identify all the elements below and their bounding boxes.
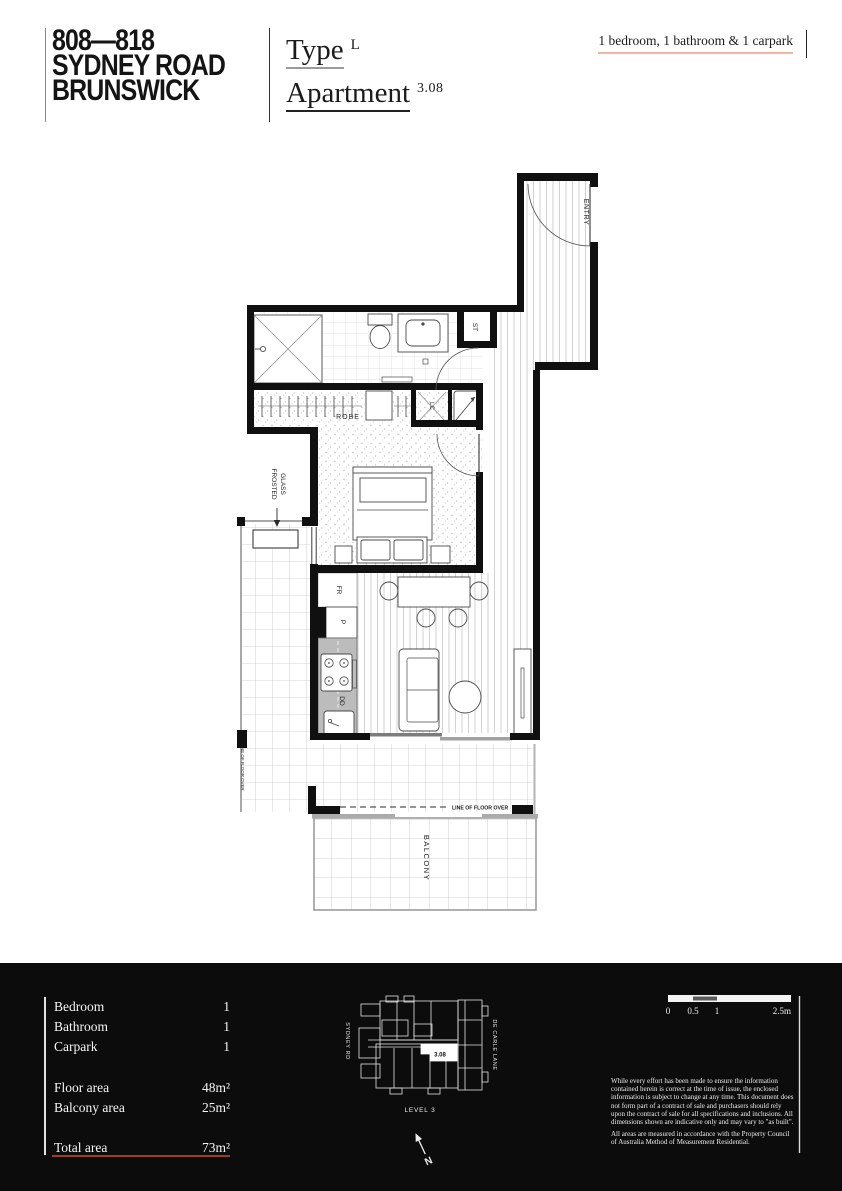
scale-tick-25: 2.5m	[773, 1006, 791, 1016]
disclaimer: While every effort has been made to ensu…	[611, 1077, 795, 1151]
bedroom-window	[310, 526, 318, 566]
robe-label: ROBE	[336, 414, 360, 421]
keyplan-street-right-label: DE CARLE LANE	[491, 1019, 497, 1070]
north-arrow-icon: N	[412, 1132, 434, 1169]
balcony-strip-tiles	[242, 744, 533, 812]
ac-unit	[253, 530, 298, 548]
keyplan	[359, 996, 488, 1094]
frosted-glass-label-line2: GLASS	[279, 473, 286, 495]
hall-floorboards	[490, 312, 535, 575]
entry-label: ENTRY	[582, 199, 589, 226]
toilet-cistern	[368, 314, 392, 325]
scale-tick-05: 0.5	[687, 1006, 699, 1016]
keyplan-unit-label: 3.08	[434, 1053, 446, 1059]
footer-panel: Bedroom 1 Bathroom 1 Carpark 1 Floor are…	[0, 963, 842, 1191]
shower-head-icon	[260, 346, 265, 351]
balustrade-band-right	[482, 814, 538, 819]
balustrade-band-left	[312, 814, 395, 819]
balcony-label: BALCONY	[422, 835, 431, 881]
robe-shelf	[366, 391, 392, 420]
toilet-bowl	[370, 326, 390, 349]
coffee-table	[449, 681, 481, 713]
tv	[521, 668, 524, 718]
floor-waste	[423, 359, 428, 364]
cooktop	[321, 654, 352, 691]
dining-table	[398, 577, 470, 607]
keyplan-street-left-label: SYDNEY RD	[344, 1022, 350, 1059]
linen-label: LC	[428, 402, 434, 410]
line-of-floor-over-left-label: LINE OF FLOOR OVER	[240, 743, 245, 790]
floor-plan-drawing: ENTRY ST ROBE LC FR P DD A/C FROSTED GLA…	[0, 0, 842, 963]
floorplan-page: 808—818 SYDNEY ROAD BRUNSWICK TypeL Apar…	[0, 0, 842, 1191]
dishwasher-label: DD	[338, 696, 345, 706]
bedside-table-right	[431, 546, 450, 563]
scale-bar: 0 0.5 1 2.5m	[666, 995, 791, 1016]
scale-tick-1: 1	[715, 1006, 720, 1016]
balcony-sliding-door	[368, 733, 512, 741]
kitchen	[318, 573, 357, 737]
scale-tick-0: 0	[666, 1006, 671, 1016]
disclaimer-paragraph-2: All areas are measured in accordance wit…	[611, 1130, 795, 1146]
fridge-label: FR	[335, 586, 342, 595]
disclaimer-paragraph-1: While every effort has been made to ensu…	[611, 1077, 795, 1126]
frosted-glass-label-line1: FROSTED	[270, 468, 277, 499]
line-of-floor-over-bottom-label: LINE OF FLOOR OVER	[452, 806, 508, 812]
kitchen-sink	[324, 711, 354, 735]
north-label: N	[423, 1155, 434, 1168]
pantry-label: P	[339, 620, 346, 624]
bedside-table-left	[335, 546, 352, 563]
store-label: ST	[471, 323, 478, 331]
towel-rail	[382, 377, 412, 382]
keyplan-level-label: LEVEL 3	[404, 1107, 435, 1114]
